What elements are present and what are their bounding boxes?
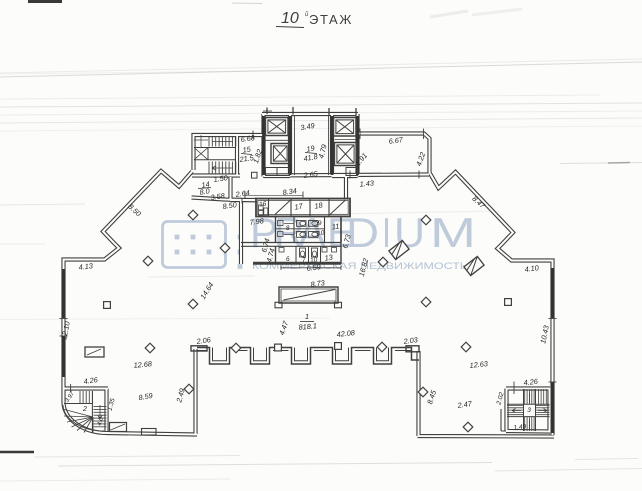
svg-text:13: 13 [324,253,333,263]
svg-text:12.68: 12.68 [133,359,153,370]
svg-text:1.49: 1.49 [513,423,527,431]
svg-text:1: 1 [305,312,309,321]
svg-text:16: 16 [259,200,268,208]
svg-text:2: 2 [82,406,87,413]
svg-text:1.43: 1.43 [359,178,374,188]
svg-text:3: 3 [527,407,531,414]
svg-text:8.0: 8.0 [199,186,211,197]
svg-text:10: 10 [281,10,299,27]
svg-text:12.63: 12.63 [469,359,488,370]
svg-text:818.1: 818.1 [298,321,317,332]
svg-text:10: 10 [317,229,326,237]
svg-text:6.67: 6.67 [388,135,404,146]
svg-text:ЭТАЖ: ЭТАЖ [309,12,353,27]
svg-text:4.13: 4.13 [78,261,93,271]
svg-text:11: 11 [331,222,340,232]
svg-text:4.26: 4.26 [523,377,539,388]
